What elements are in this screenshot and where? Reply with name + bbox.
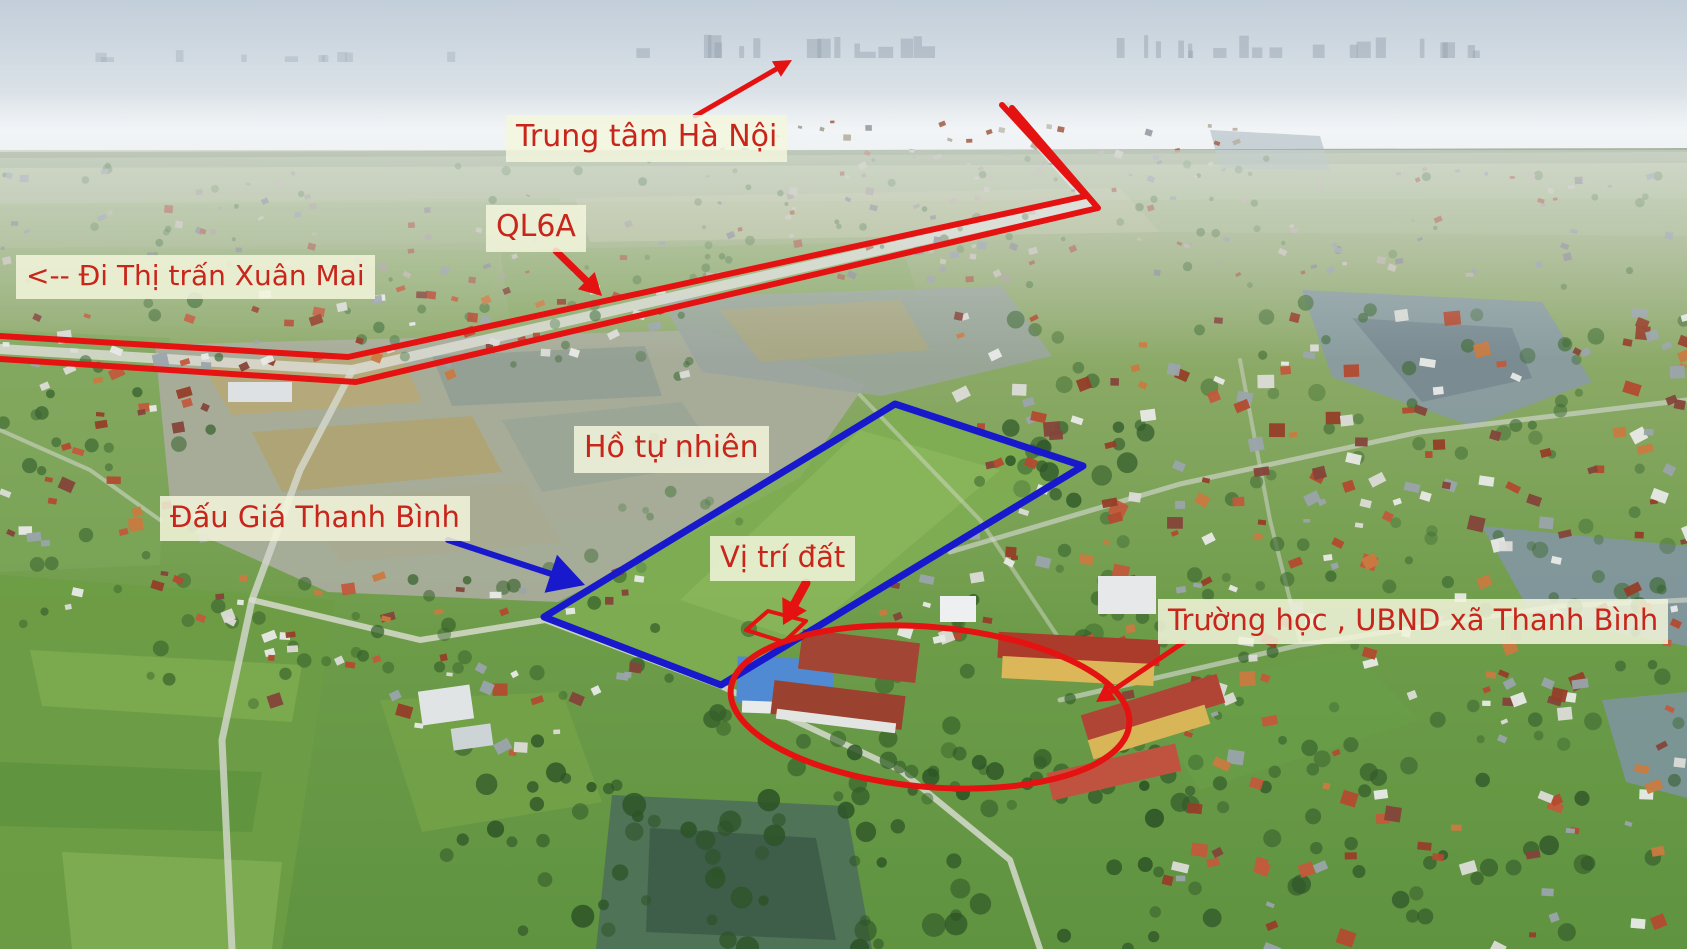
label-ql6a: QL6A [486,205,586,252]
label-natural-lake: Hồ tự nhiên [574,426,769,473]
hanoi-direction-arrow-shaft [695,68,778,116]
label-school-ubnd: Trường học , UBND xã Thanh Bình [1158,599,1668,644]
label-auction-thanh-binh: Đấu Giá Thanh Bình [160,496,470,541]
school-pointer-arrow-shaft [1109,642,1184,693]
label-plot-location: Vị trí đất [710,536,855,581]
ql6a-pointer-arrow-shaft [556,251,588,282]
plot-pointer-arrow-shaft [794,583,806,606]
label-xuan-mai-direction: <-- Đi Thị trấn Xuân Mai [16,255,375,299]
aerial-map: Trung tâm Hà Nội QL6A <-- Đi Thị trấn Xu… [0,0,1687,949]
auction-pointer-arrow-shaft [448,540,553,574]
label-hanoi-center: Trung tâm Hà Nội [506,115,787,162]
annotation-overlay [0,0,1687,949]
